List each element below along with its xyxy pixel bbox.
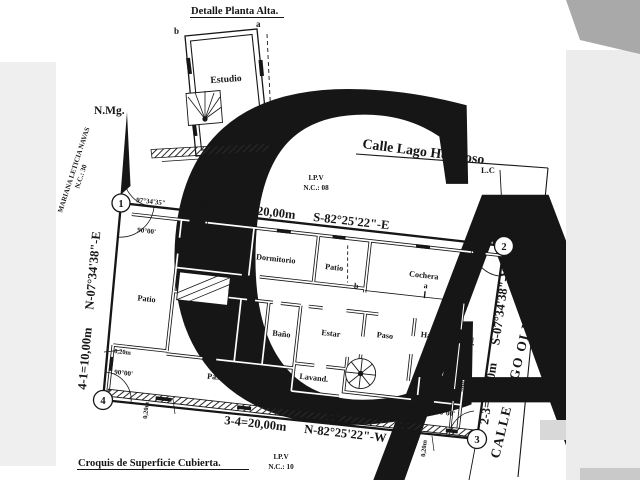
scan-corner-dark — [566, 0, 640, 54]
detail-marker-a: a — [256, 19, 261, 29]
detail-marker-b: b — [174, 26, 179, 36]
ipv-top-line1: I.P.V — [308, 174, 324, 182]
north-label: N.Mg. — [94, 105, 125, 117]
detail-title: Detalle Planta Alta. — [191, 6, 279, 17]
angle-corner-4: 90°00' — [114, 368, 134, 378]
ipv-bottom-line2: N.C.: 10 — [268, 463, 294, 471]
dim-left-bearing: N-07°34'38"-E — [82, 231, 103, 311]
dim-side-left: 4-1=10,00mN-07°34'38"-E — [75, 231, 103, 391]
north-arrow: N.Mg. — [94, 105, 131, 195]
room-label-paso-top: Paso — [228, 283, 245, 294]
corner-2: 2 — [501, 242, 506, 253]
room-label-paso-mid: Paso — [376, 330, 393, 341]
room-label-hall: Hall — [420, 330, 437, 341]
offset-left: 0,20m — [114, 348, 132, 357]
street-lc-label: L.C — [481, 165, 495, 175]
scan-blot — [540, 420, 566, 440]
corner-1: 1 — [118, 199, 123, 210]
angle-corner-1: 90°00' — [137, 226, 157, 236]
dim-left-distance: 4-1=10,00m — [75, 326, 95, 390]
plan-canvas: C A Detalle Planta Alta. Estudio b a N.M… — [0, 0, 640, 480]
room-label-patio-left: Patio — [137, 293, 156, 304]
survey-sketch-page: C A Detalle Planta Alta. Estudio b a N.M… — [0, 0, 640, 480]
north-arrow-icon — [121, 112, 131, 195]
ipv-top-line2: N.C.: 08 — [303, 184, 329, 192]
ipv-bottom-line1: I.P.V — [273, 453, 289, 461]
scan-edge-left — [0, 62, 56, 466]
scan-edge-right — [566, 50, 640, 480]
corner-3: 3 — [474, 435, 479, 446]
scan-blot-bottom — [580, 468, 640, 480]
marker-a-tick — [424, 291, 425, 298]
page-caption: Croquis de Superficie Cubierta. — [78, 458, 221, 469]
room-label-paso-bottom: Paso — [207, 372, 224, 383]
frontage-dim: 61,10m — [482, 199, 492, 223]
corner-4: 4 — [100, 396, 106, 407]
